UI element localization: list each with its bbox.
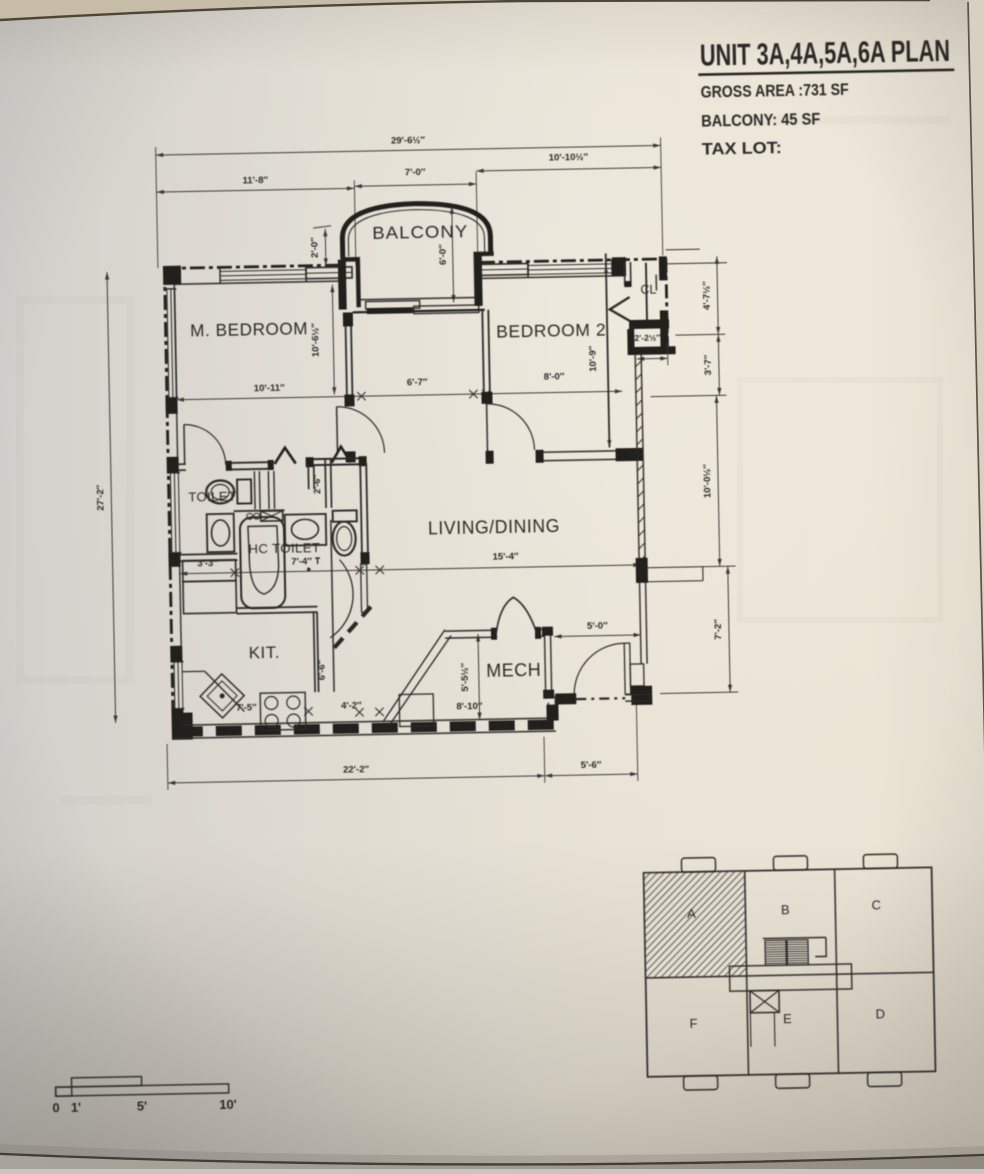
- svg-text:UNIT 3A,4A,5A,6A PLAN: UNIT 3A,4A,5A,6A PLAN: [700, 33, 951, 73]
- svg-text:E: E: [783, 1011, 792, 1026]
- svg-text:F: F: [689, 1016, 697, 1031]
- svg-text:7'-2″: 7'-2″: [713, 619, 724, 640]
- svg-text:1': 1': [71, 1100, 82, 1115]
- svg-text:KIT.: KIT.: [248, 643, 280, 663]
- svg-text:4'-7½″: 4'-7½″: [701, 281, 713, 310]
- svg-text:6'-0″: 6'-0″: [438, 244, 449, 265]
- svg-text:4'-2″: 4'-2″: [341, 700, 362, 711]
- svg-text:TAX LOT:: TAX LOT:: [702, 138, 782, 159]
- svg-text:15'-4″: 15'-4″: [492, 551, 519, 563]
- svg-text:3'-7″: 3'-7″: [703, 354, 714, 375]
- svg-text:A: A: [687, 906, 696, 921]
- svg-text:10'-11″: 10'-11″: [254, 383, 285, 395]
- svg-text:5'-0″: 5'-0″: [587, 621, 608, 632]
- svg-text:7'-4″: 7'-4″: [291, 556, 312, 567]
- svg-text:10'-10½″: 10'-10½″: [549, 152, 589, 164]
- svg-text:7'-5″: 7'-5″: [236, 702, 257, 713]
- svg-text:7'-0″: 7'-0″: [405, 167, 426, 178]
- svg-text:BALCONY: BALCONY: [372, 221, 468, 243]
- svg-text:GROSS AREA :731 SF: GROSS AREA :731 SF: [700, 80, 848, 102]
- svg-text:MECH: MECH: [486, 660, 541, 681]
- svg-text:29'-6½″: 29'-6½″: [391, 135, 426, 147]
- svg-text:LIVING/DINING: LIVING/DINING: [428, 516, 560, 539]
- svg-text:10'-6½″: 10'-6½″: [310, 323, 322, 358]
- svg-text:M. BEDROOM: M. BEDROOM: [190, 318, 308, 340]
- svg-text:BEDROOM 2: BEDROOM 2: [496, 320, 606, 342]
- svg-text:BALCONY: 45 SF: BALCONY: 45 SF: [701, 109, 820, 130]
- svg-text:0: 0: [52, 1100, 60, 1115]
- svg-text:5': 5': [137, 1098, 148, 1113]
- svg-text:5'-6″: 5'-6″: [581, 760, 602, 771]
- svg-text:C: C: [871, 897, 881, 912]
- svg-text:10': 10': [219, 1097, 237, 1112]
- svg-text:8'-0″: 8'-0″: [544, 371, 565, 382]
- svg-text:6'-7″: 6'-7″: [407, 377, 428, 388]
- svg-text:D: D: [876, 1006, 886, 1021]
- svg-text:CL: CL: [640, 282, 656, 297]
- svg-text:10'-9″: 10'-9″: [587, 345, 599, 372]
- svg-text:10'-0½″: 10'-0½″: [702, 464, 714, 499]
- svg-text:11'-8″: 11'-8″: [242, 175, 268, 186]
- svg-text:22'-2″: 22'-2″: [343, 764, 370, 776]
- svg-text:5'-5½″: 5'-5½″: [460, 662, 472, 691]
- svg-text:27'-2″: 27'-2″: [95, 484, 107, 511]
- svg-text:B: B: [781, 902, 790, 917]
- svg-text:2'-0″: 2'-0″: [309, 237, 320, 258]
- svg-text:2'-2½″: 2'-2½″: [634, 332, 660, 342]
